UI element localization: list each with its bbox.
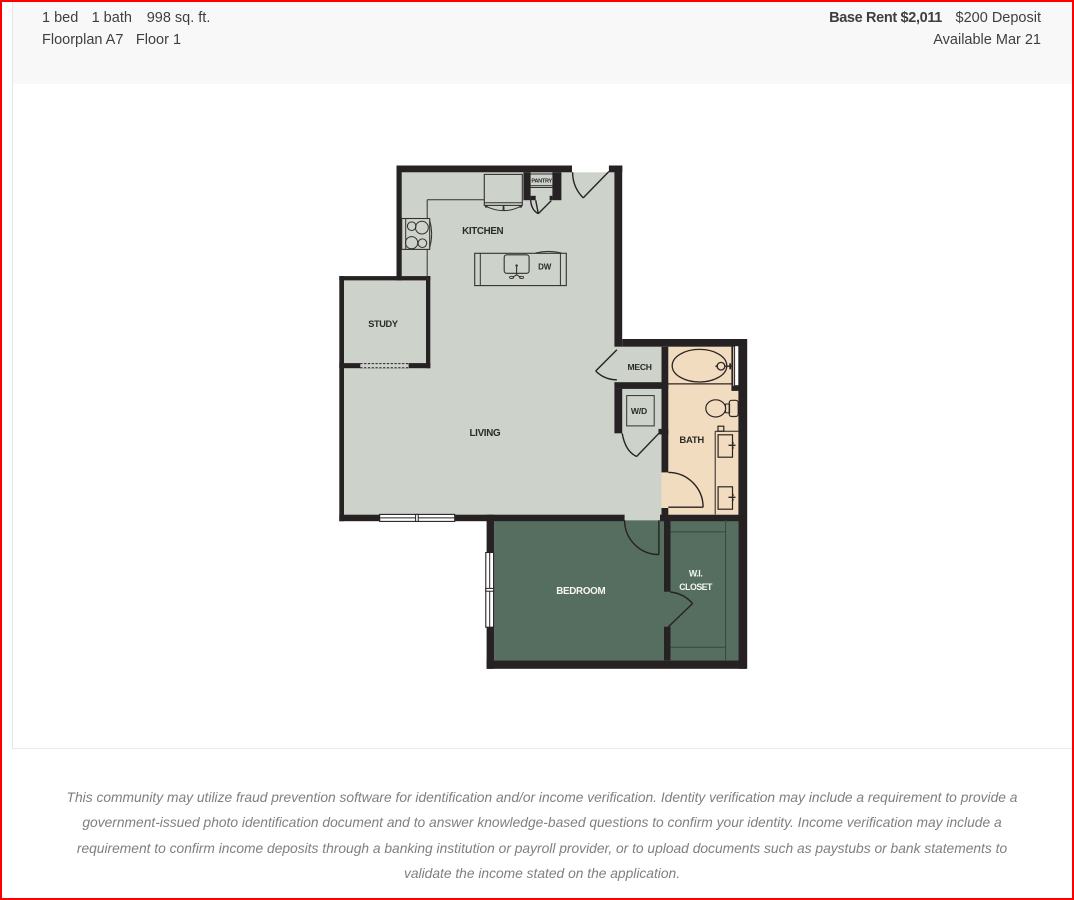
svg-text:STUDY: STUDY (368, 319, 398, 329)
svg-text:W.I.: W.I. (689, 569, 703, 579)
svg-text:LIVING: LIVING (469, 428, 501, 439)
svg-text:KITCHEN: KITCHEN (462, 226, 503, 237)
svg-text:MECH: MECH (627, 362, 651, 372)
svg-text:BEDROOM: BEDROOM (556, 586, 605, 597)
svg-text:DW: DW (538, 262, 552, 271)
svg-text:BATH: BATH (679, 435, 704, 446)
svg-text:PANTRY: PANTRY (531, 178, 552, 184)
svg-text:CLOSET: CLOSET (679, 582, 713, 592)
svg-text:W/D: W/D (631, 406, 647, 416)
